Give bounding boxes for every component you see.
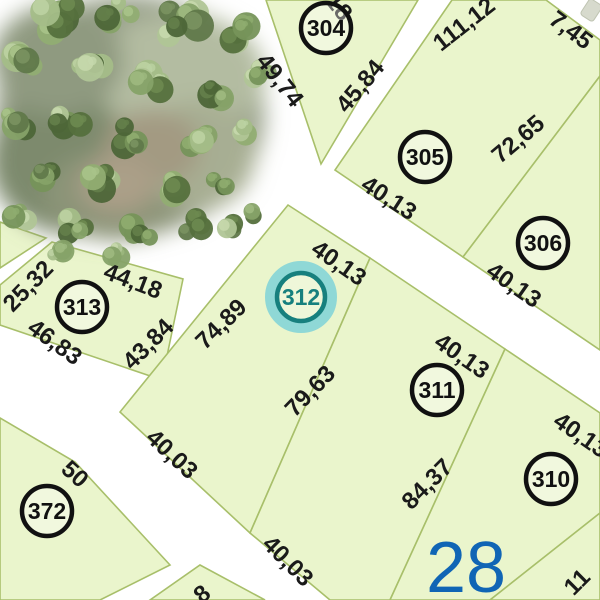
badge-label: 312	[282, 284, 320, 310]
cadastral-map: 49,7445,84111,127,4572,6540,1340,1340,13…	[0, 0, 600, 600]
badge-label: 304	[307, 15, 346, 41]
parcel-badge-310[interactable]: 310	[526, 454, 576, 504]
badge-label: 372	[28, 498, 66, 524]
map-canvas: 49,7445,84111,127,4572,6540,1340,1340,13…	[0, 0, 600, 600]
block-number: 28	[426, 528, 506, 600]
parcel-badge-313[interactable]: 313	[57, 282, 107, 332]
badge-label: 306	[524, 230, 562, 256]
badge-label: 310	[532, 466, 570, 492]
badge-label: 313	[63, 294, 101, 320]
parcel-badge-372[interactable]: 372	[22, 486, 72, 536]
parcel-badge-306[interactable]: 306	[518, 218, 568, 268]
parcel-badge-305[interactable]: 305	[400, 132, 450, 182]
parcel-badge-304[interactable]: 304	[301, 3, 351, 53]
badge-label: 311	[418, 377, 455, 403]
parcel-badge-312[interactable]: 312	[270, 266, 332, 328]
parcel-badge-311[interactable]: 311	[412, 365, 462, 415]
badge-label: 305	[406, 144, 445, 170]
